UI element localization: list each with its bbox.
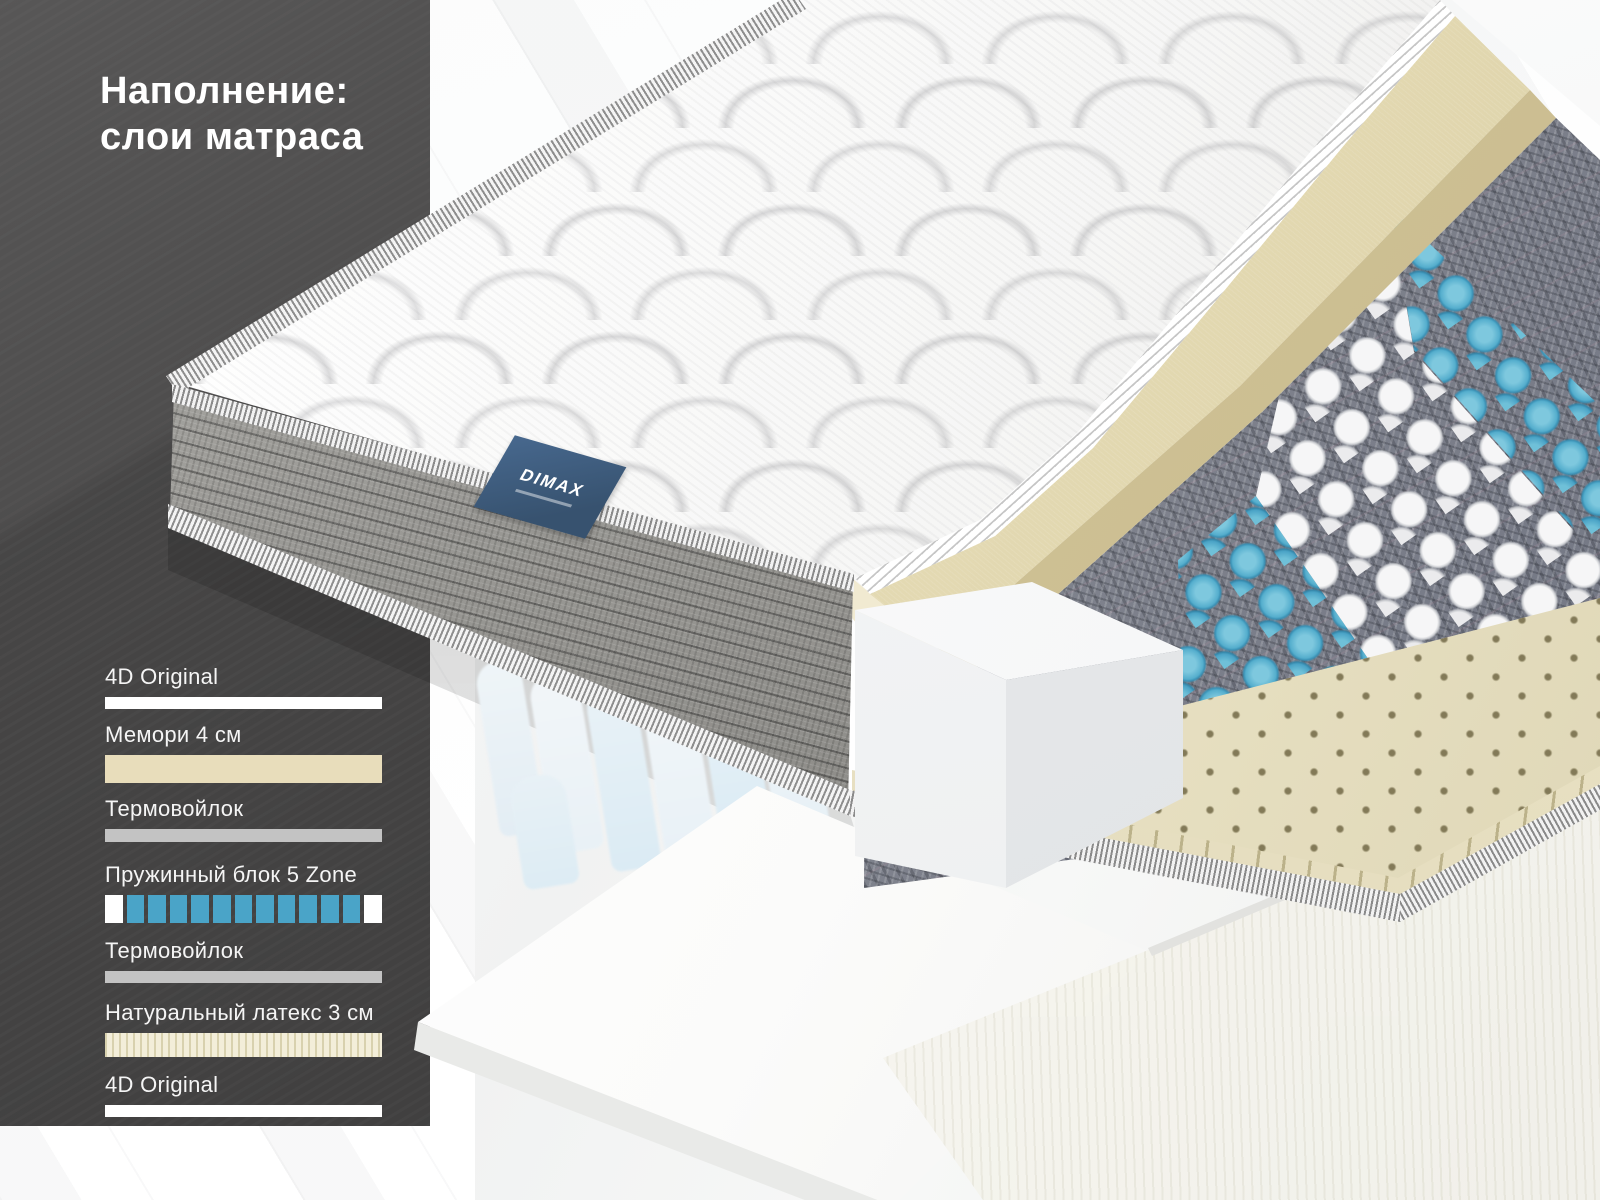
legend-swatch-felt-lower xyxy=(105,971,382,983)
spring-zone-block xyxy=(170,895,188,923)
legend-item-spring-block: Пружинный блок 5 Zone xyxy=(105,862,382,923)
legend-swatch-latex xyxy=(105,1033,382,1057)
legend-swatch-felt-upper xyxy=(105,829,382,842)
brand-tag-label: DIMAX xyxy=(516,466,589,502)
legend: 4D OriginalМемори 4 смТермовойлокПружинн… xyxy=(105,0,382,1200)
legend-item-cover-bottom: 4D Original xyxy=(105,1072,382,1117)
legend-swatch-cover-bottom xyxy=(105,1105,382,1117)
spring-zone-block xyxy=(235,895,253,923)
legend-item-label: Мемори 4 см xyxy=(105,722,382,748)
spring-zone-block xyxy=(321,895,339,923)
legend-item-felt-upper: Термовойлок xyxy=(105,796,382,842)
spring-zone-block xyxy=(299,895,317,923)
spring-zone-block xyxy=(191,895,209,923)
legend-item-label: 4D Original xyxy=(105,1072,382,1098)
spring-zone-block xyxy=(148,895,166,923)
legend-swatch-spring-block xyxy=(105,895,382,923)
infographic-mattress-layers: DIMAX Наполнение: слои матраса 4D Origin… xyxy=(0,0,1600,1200)
legend-swatch-cover-top xyxy=(105,697,382,709)
spring-zone-block xyxy=(213,895,231,923)
spring-zone-block xyxy=(364,895,382,923)
legend-item-latex: Натуральный латекс 3 см xyxy=(105,1000,382,1057)
legend-item-felt-lower: Термовойлок xyxy=(105,938,382,983)
legend-item-label: Термовойлок xyxy=(105,796,382,822)
legend-swatch-memory-foam xyxy=(105,755,382,783)
legend-item-label: Пружинный блок 5 Zone xyxy=(105,862,382,888)
spring-zone-block xyxy=(105,895,123,923)
legend-item-label: 4D Original xyxy=(105,664,382,690)
spring-zone-block xyxy=(256,895,274,923)
spring-zone-block xyxy=(278,895,296,923)
legend-item-label: Термовойлок xyxy=(105,938,382,964)
legend-item-label: Натуральный латекс 3 см xyxy=(105,1000,382,1026)
legend-item-memory-foam: Мемори 4 см xyxy=(105,722,382,783)
spring-zone-block xyxy=(343,895,361,923)
spring-zone-block xyxy=(127,895,145,923)
legend-item-cover-top: 4D Original xyxy=(105,664,382,709)
